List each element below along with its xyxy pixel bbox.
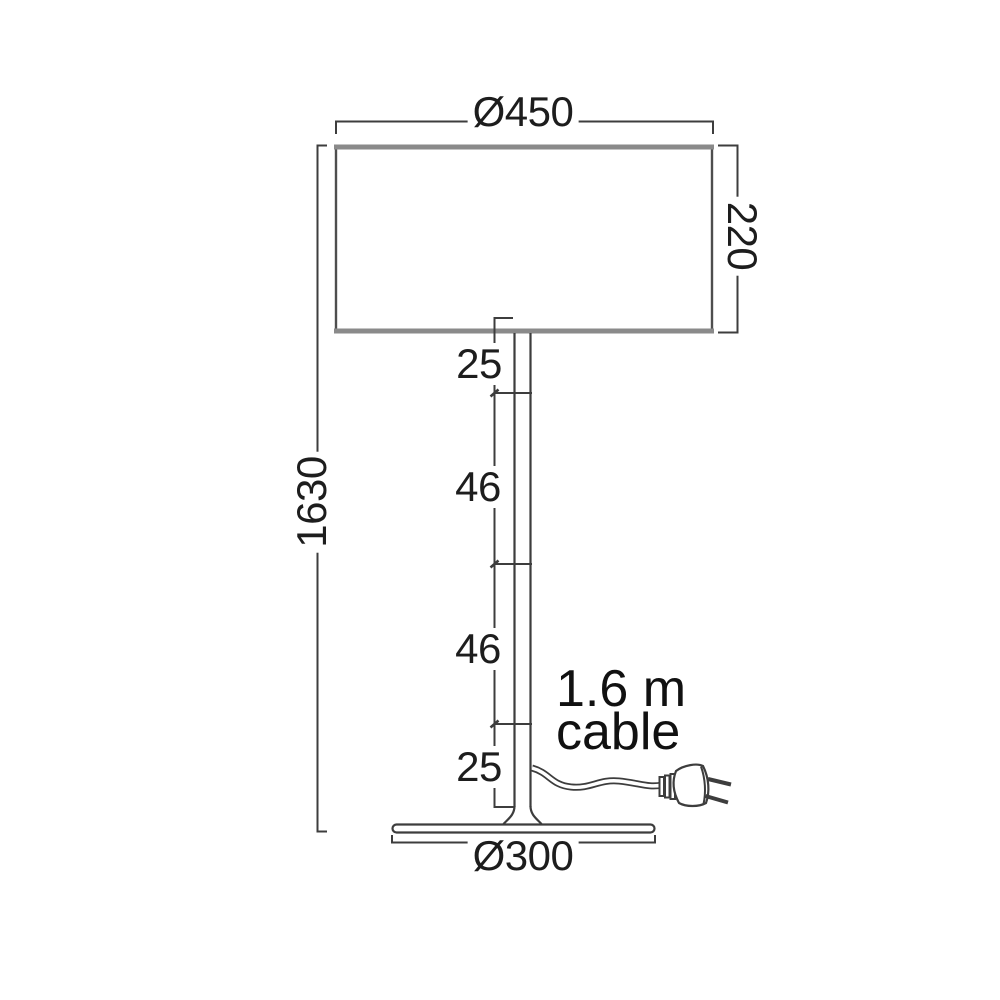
total-height-label: 1630 (291, 451, 333, 552)
base-diameter-label: Ø300 (468, 835, 579, 877)
power-plug-icon (660, 765, 732, 806)
pole-segment-dimension-line (491, 318, 533, 807)
shade-diameter-label: Ø450 (468, 91, 579, 133)
cable-length-note: 1.6 m cable (556, 668, 686, 754)
power-cable (532, 768, 662, 787)
pole-segment-1-label: 25 (451, 343, 507, 385)
cable-length-line2: cable (556, 711, 686, 754)
lamp-dimension-diagram: Ø450 220 1630 25 46 46 25 Ø300 1.6 m cab… (0, 0, 1000, 1000)
pole-segment-3-label: 46 (450, 628, 506, 670)
lamp-pole (504, 333, 542, 824)
pole-segment-4-label: 25 (451, 746, 507, 788)
shade-height-label: 220 (721, 197, 763, 276)
lampshade-outline (334, 146, 714, 332)
pole-segment-2-label: 46 (450, 466, 506, 508)
